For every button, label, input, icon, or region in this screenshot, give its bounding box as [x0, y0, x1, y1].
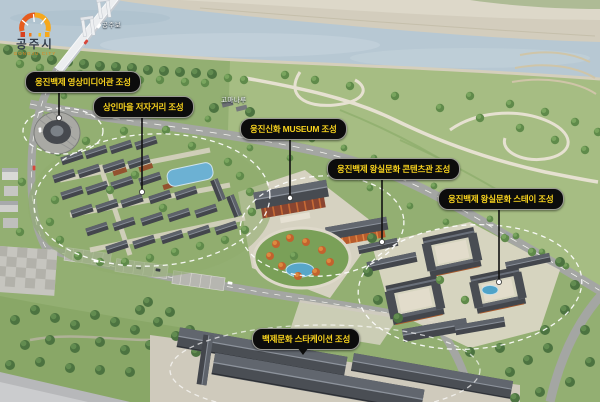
- callout-label-museum: 웅진신화 MUSEUM 조성: [240, 118, 347, 140]
- callout-label-royal-contents-hall: 웅진백제 왕실문화 콘텐츠관 조성: [327, 158, 460, 180]
- callout-label-media-hall: 웅진백제 영상미디어관 조성: [25, 71, 141, 93]
- checker-plaza: [0, 246, 57, 296]
- callout-label-royal-stay: 웅진백제 왕실문화 스테이 조성: [438, 188, 564, 210]
- logo-city-name-en: GONGJU CITY: [8, 51, 62, 57]
- gongju-arch-icon: [17, 6, 53, 38]
- garden-with-pond: [254, 228, 350, 288]
- masterplan-rendering: 공주시 GONGJU CITY 공주보 고마나루 웅진백제 영상미디어관 조성 …: [0, 0, 600, 402]
- gongju-city-logo: 공주시 GONGJU CITY: [8, 6, 62, 57]
- callout-label-market-street: 상인마을 저자거리 조성: [93, 96, 194, 118]
- callout-tail-staycation: [297, 347, 309, 355]
- logo-city-name: 공주시: [8, 39, 62, 51]
- map-label-weir: 공주보: [102, 19, 121, 29]
- map-label-gomanaru: 고마나루: [221, 94, 247, 104]
